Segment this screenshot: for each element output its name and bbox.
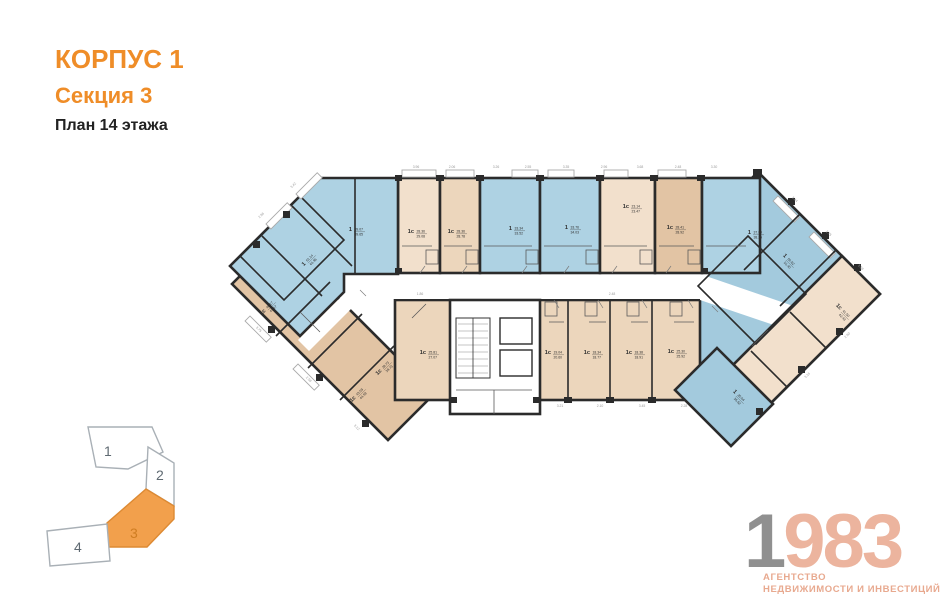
svg-text:1с: 1с <box>668 349 674 355</box>
svg-text:1с: 1с <box>626 350 632 356</box>
svg-text:33.76: 33.76 <box>571 225 580 229</box>
minimap-label-4: 4 <box>74 539 82 555</box>
svg-text:1с: 1с <box>448 229 454 235</box>
page: КОРПУС 1 Секция 3 План 14 этажа <box>0 0 941 600</box>
dimension-label: 2.10 <box>597 404 604 408</box>
floor-plan: 139.0739.65161.1461.961с28.3629.081с28.3… <box>230 165 880 446</box>
svg-text:18.38: 18.38 <box>635 350 644 354</box>
svg-text:25.81: 25.81 <box>429 350 438 354</box>
svg-text:1: 1 <box>349 227 352 233</box>
title-block: КОРПУС 1 Секция 3 План 14 этажа <box>55 44 184 134</box>
dimension-label: 2.96 <box>258 211 266 219</box>
section-title: Секция 3 <box>55 83 152 108</box>
svg-text:1с: 1с <box>408 229 414 235</box>
plan-canvas: КОРПУС 1 Секция 3 План 14 этажа <box>0 0 941 600</box>
svg-text:1: 1 <box>748 230 751 236</box>
svg-text:29.08: 29.08 <box>417 235 426 239</box>
svg-text:28.36: 28.36 <box>457 229 466 233</box>
svg-text:18.91: 18.91 <box>635 356 644 360</box>
elevator <box>500 350 532 376</box>
stair-core <box>450 300 540 414</box>
minimap-label-2: 2 <box>156 467 164 483</box>
svg-text:1с: 1с <box>420 350 426 356</box>
svg-text:33.52: 33.52 <box>515 232 524 236</box>
svg-text:38.25: 38.25 <box>754 236 763 240</box>
building-title: КОРПУС 1 <box>55 44 184 74</box>
dimension-label: 2.96 <box>601 165 608 169</box>
svg-text:1с: 1с <box>545 350 551 356</box>
svg-text:1: 1 <box>509 226 512 232</box>
top-row <box>398 178 760 273</box>
dimension-label: 3.26 <box>493 165 500 169</box>
dimension-label: 3.45 <box>639 404 646 408</box>
dimension-label: 3.68 <box>637 165 644 169</box>
dimension-label: 3.30 <box>711 165 718 169</box>
dimension-label: 2.06 <box>449 165 456 169</box>
dimension-label: 2.48 <box>675 165 682 169</box>
svg-text:1: 1 <box>565 225 568 231</box>
dimension-label: 3.96 <box>413 165 420 169</box>
logo-line2: НЕДВИЖИМОСТИ И ИНВЕСТИЦИЙ <box>763 583 940 595</box>
section-minimap: 1 2 3 4 <box>47 427 174 566</box>
dimension-label: 3.35 <box>563 165 570 169</box>
dimension-label: 3.12 <box>353 424 361 432</box>
svg-text:28.36: 28.36 <box>417 229 426 233</box>
svg-text:39.07: 39.07 <box>355 227 364 231</box>
svg-text:28.41: 28.41 <box>676 225 685 229</box>
svg-text:23.14: 23.14 <box>632 204 641 208</box>
dimension-label: 2.90 <box>844 331 852 339</box>
elevator <box>500 318 532 344</box>
svg-text:19.04: 19.04 <box>554 350 563 354</box>
dimension-label: 3.21 <box>557 404 564 408</box>
svg-text:25.30: 25.30 <box>677 349 686 353</box>
svg-text:20.60: 20.60 <box>554 356 563 360</box>
floor-title: План 14 этажа <box>55 117 168 134</box>
dimension-label: 1.86 <box>417 292 424 296</box>
corridor <box>344 274 708 299</box>
svg-text:18.34: 18.34 <box>593 350 602 354</box>
svg-text:25.92: 25.92 <box>677 355 686 359</box>
svg-text:27.07: 27.07 <box>429 356 438 360</box>
svg-text:23.47: 23.47 <box>632 210 641 214</box>
agency-logo: 1983 АГЕНТСТВО НЕДВИЖИМОСТИ И ИНВЕСТИЦИЙ <box>744 499 940 595</box>
dimension-label: 2.28 <box>681 404 688 408</box>
svg-text:28.78: 28.78 <box>457 235 466 239</box>
svg-text:34.03: 34.03 <box>571 231 580 235</box>
svg-text:18.77: 18.77 <box>593 356 602 360</box>
svg-text:1с: 1с <box>584 350 590 356</box>
svg-text:1с: 1с <box>623 204 629 210</box>
minimap-label-1: 1 <box>104 443 112 459</box>
svg-text:39.65: 39.65 <box>355 233 364 237</box>
dimension-label: 2.48 <box>609 292 616 296</box>
svg-text:28.92: 28.92 <box>676 231 685 235</box>
svg-text:37.80: 37.80 <box>754 230 763 234</box>
svg-text:1с: 1с <box>667 225 673 231</box>
svg-text:33.34: 33.34 <box>515 226 524 230</box>
dimension-label: 2.55 <box>525 165 532 169</box>
minimap-label-3: 3 <box>130 525 138 541</box>
dimension-label: 3.42 <box>290 181 298 189</box>
logo-line1: АГЕНТСТВО <box>763 572 826 583</box>
